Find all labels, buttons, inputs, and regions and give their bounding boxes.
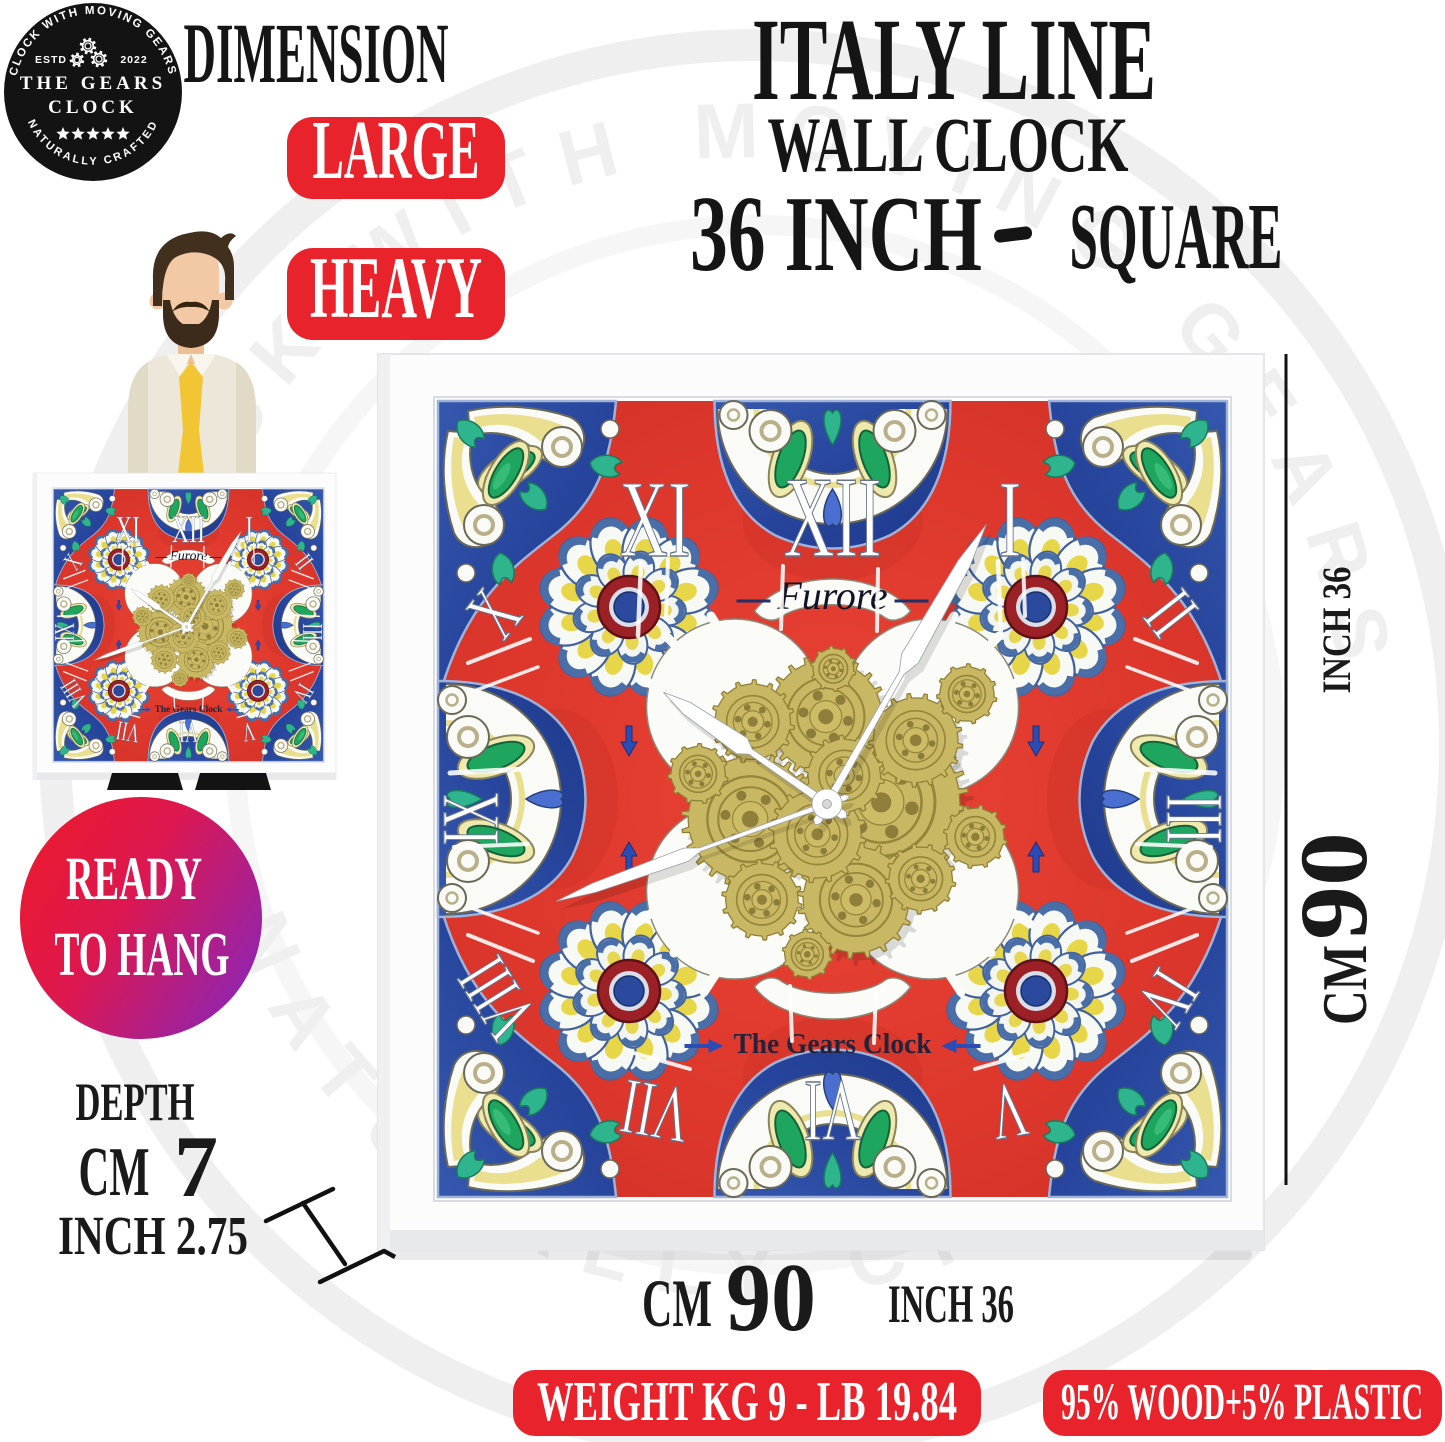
- svg-text:2022: 2022: [120, 54, 147, 66]
- svg-text:90: 90: [1280, 832, 1387, 940]
- svg-text:CM: CM: [642, 1265, 712, 1341]
- svg-text:CM: CM: [1309, 945, 1380, 1025]
- svg-text:THE GEARS: THE GEARS: [20, 73, 166, 94]
- svg-text:7: 7: [174, 1119, 218, 1216]
- svg-text:INCH 2.75: INCH 2.75: [58, 1205, 248, 1266]
- svg-text:36 INCH: 36 INCH: [690, 175, 982, 294]
- svg-text:ESTD: ESTD: [35, 54, 67, 66]
- svg-text:95% WOOD+5% PLASTIC: 95% WOOD+5% PLASTIC: [1061, 1374, 1423, 1431]
- svg-text:DIMENSION: DIMENSION: [184, 5, 449, 101]
- svg-text:SQUARE: SQUARE: [1070, 185, 1283, 289]
- svg-text:READY: READY: [66, 846, 202, 913]
- svg-text:TO HANG: TO HANG: [55, 921, 230, 989]
- svg-text:CM: CM: [79, 1134, 150, 1211]
- svg-text:HEAVY: HEAVY: [310, 240, 482, 337]
- svg-text:WEIGHT KG 9 - LB 19.84: WEIGHT KG 9 - LB 19.84: [537, 1371, 957, 1433]
- svg-text:INCH 36: INCH 36: [1314, 567, 1359, 694]
- svg-text:90: 90: [726, 1244, 816, 1352]
- svg-text:LARGE: LARGE: [313, 104, 480, 197]
- svg-text:CLOCK: CLOCK: [48, 97, 138, 118]
- svg-text:INCH 36: INCH 36: [888, 1274, 1014, 1334]
